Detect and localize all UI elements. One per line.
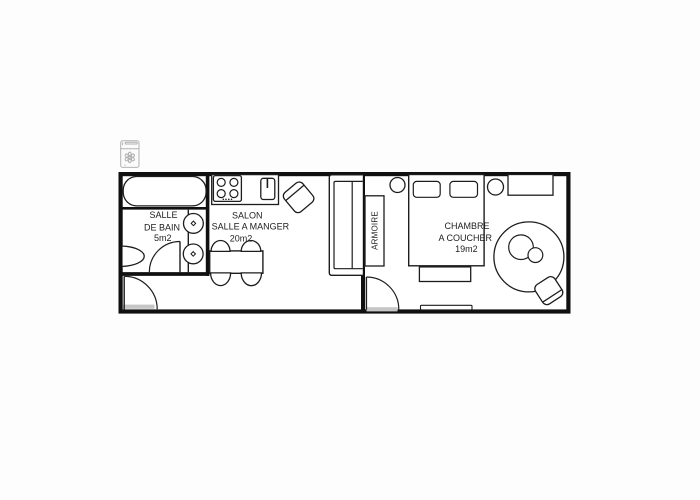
- svg-text:CHAMBRE: CHAMBRE: [444, 221, 489, 231]
- svg-text:DE BAIN: DE BAIN: [144, 223, 180, 233]
- svg-text:SALLE: SALLE: [149, 210, 177, 220]
- svg-text:5m2: 5m2: [154, 233, 172, 243]
- svg-text:SALON: SALON: [232, 210, 263, 220]
- svg-text:A COUCHER: A COUCHER: [438, 233, 492, 243]
- svg-text:20m2: 20m2: [230, 233, 253, 243]
- svg-text:19m2: 19m2: [455, 244, 478, 254]
- svg-text:SALLE A MANGER: SALLE A MANGER: [212, 221, 290, 231]
- svg-text:ARMOIRE: ARMOIRE: [370, 211, 379, 250]
